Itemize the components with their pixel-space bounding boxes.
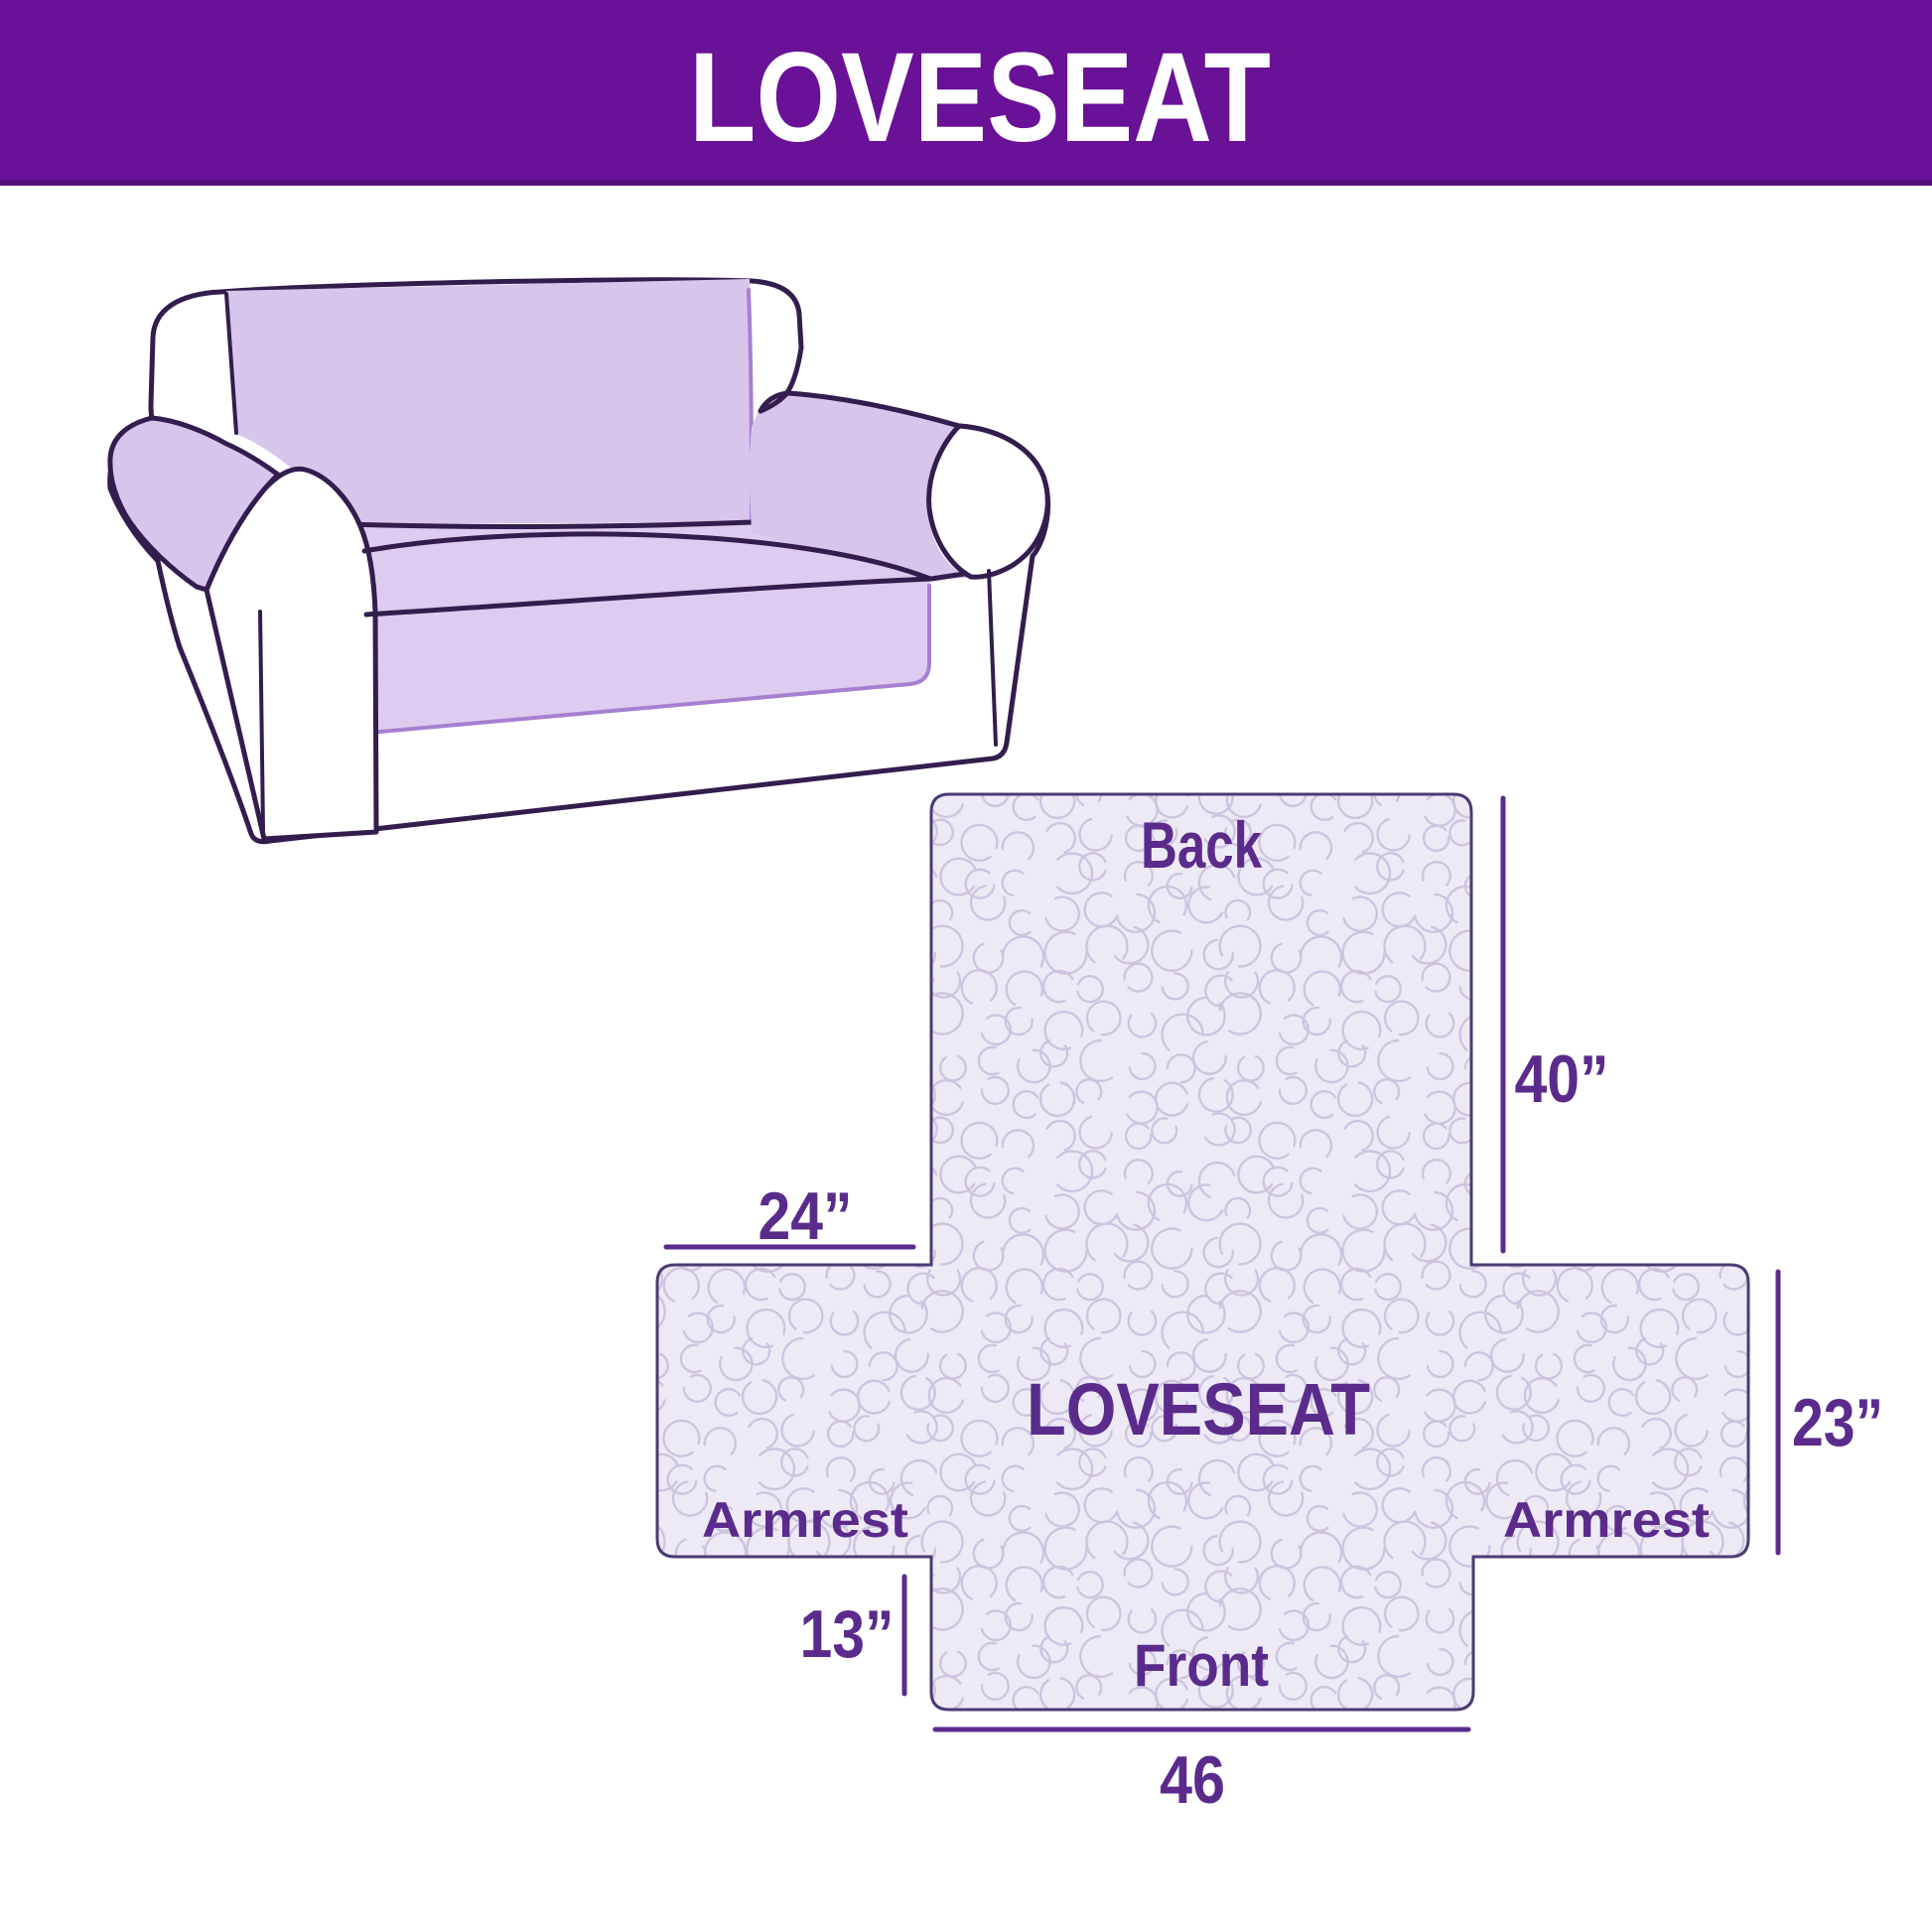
svg-text:13”: 13” bbox=[800, 1596, 895, 1672]
svg-text:LOVESEAT: LOVESEAT bbox=[689, 27, 1271, 169]
svg-text:Armrest: Armrest bbox=[702, 1492, 908, 1548]
svg-text:46: 46 bbox=[1160, 1742, 1225, 1818]
svg-text:LOVESEAT: LOVESEAT bbox=[1027, 1368, 1370, 1450]
svg-text:40”: 40” bbox=[1515, 1041, 1609, 1117]
svg-text:Back: Back bbox=[1141, 808, 1262, 882]
svg-text:Front: Front bbox=[1134, 1632, 1269, 1699]
svg-text:23”: 23” bbox=[1792, 1385, 1883, 1460]
svg-text:24”: 24” bbox=[759, 1178, 853, 1254]
svg-text:Armrest: Armrest bbox=[1503, 1492, 1710, 1548]
